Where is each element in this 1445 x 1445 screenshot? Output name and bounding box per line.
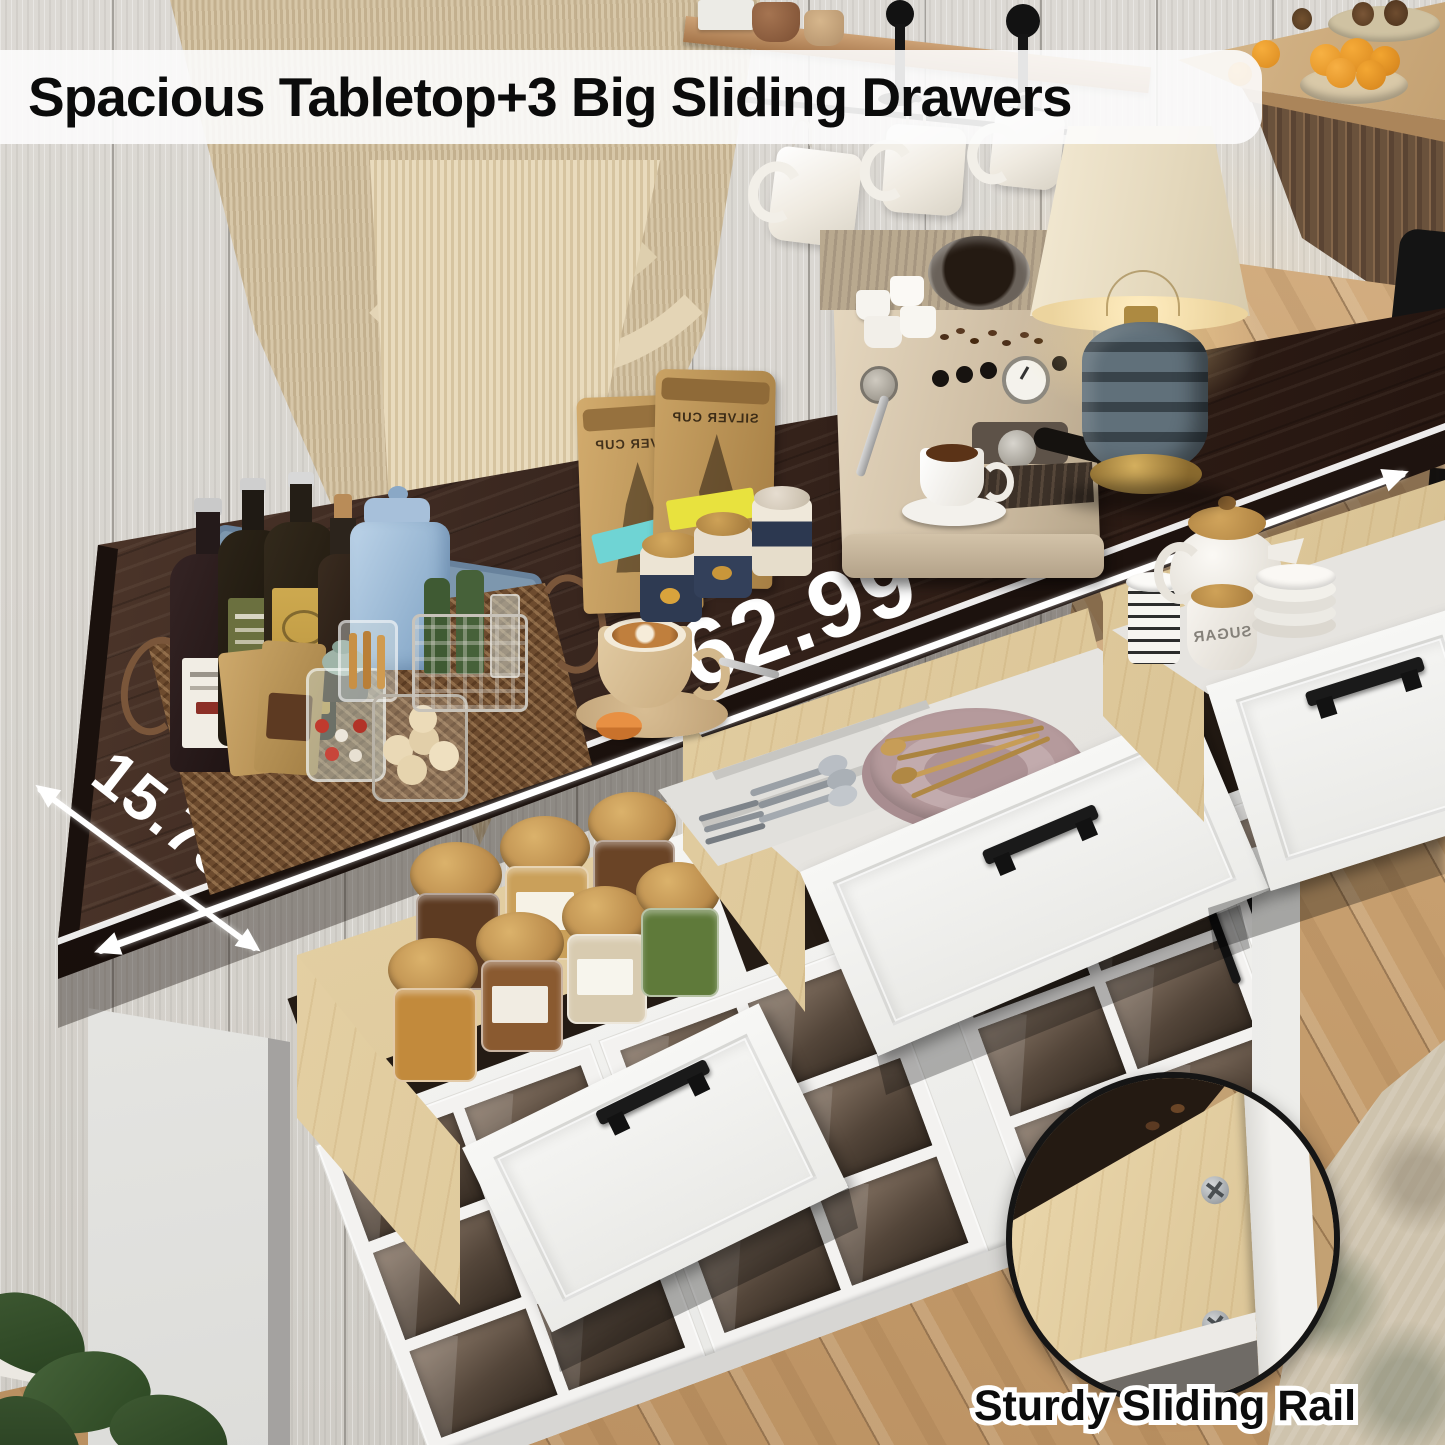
table-lamp [1010, 110, 1270, 510]
product-scene: 62.99" 15.75" [0, 0, 1445, 1445]
machine-base [842, 534, 1104, 578]
canister-tin [694, 512, 752, 600]
storage-jar [388, 938, 478, 1084]
pinecone [1292, 8, 1312, 30]
saucer-stack [1252, 560, 1336, 644]
sugar-canister: SUGAR [1185, 582, 1259, 672]
machine-button [932, 370, 949, 387]
canister-tin [752, 486, 812, 578]
headline-banner: Spacious Tabletop+3 Big Sliding Drawers [0, 50, 1262, 144]
bottle-crate [412, 604, 522, 708]
shelf-books [698, 0, 754, 30]
storage-jar [476, 912, 564, 1054]
inset-caption: Sturdy Sliding Rail Sturdy Sliding Rail [940, 1382, 1390, 1436]
headline-text: Spacious Tabletop+3 Big Sliding Drawers [28, 50, 1258, 144]
orange-bowl [1300, 52, 1408, 104]
inset-caption-text: Sturdy Sliding Rail [940, 1382, 1390, 1431]
machine-button [980, 362, 997, 379]
coffee-bag-brand: SILVER CUP [655, 409, 775, 426]
pinecone [1384, 0, 1408, 26]
canister-tin [640, 532, 702, 624]
lamp-shadow [1060, 482, 1230, 512]
espresso-mini-cup [864, 316, 902, 348]
shelf-vase [804, 10, 844, 46]
amber-jar [338, 620, 398, 702]
shelf-pot [752, 2, 800, 42]
macaron [596, 712, 642, 740]
espresso-cup [898, 440, 1018, 530]
lamp-base [1082, 322, 1208, 472]
latte-cup [568, 612, 778, 748]
espresso-mini-cup [890, 276, 924, 306]
espresso-mini-cup [900, 306, 936, 338]
pinecone [1352, 2, 1374, 26]
machine-button [956, 366, 973, 383]
detail-inset-circle [1006, 1072, 1340, 1406]
